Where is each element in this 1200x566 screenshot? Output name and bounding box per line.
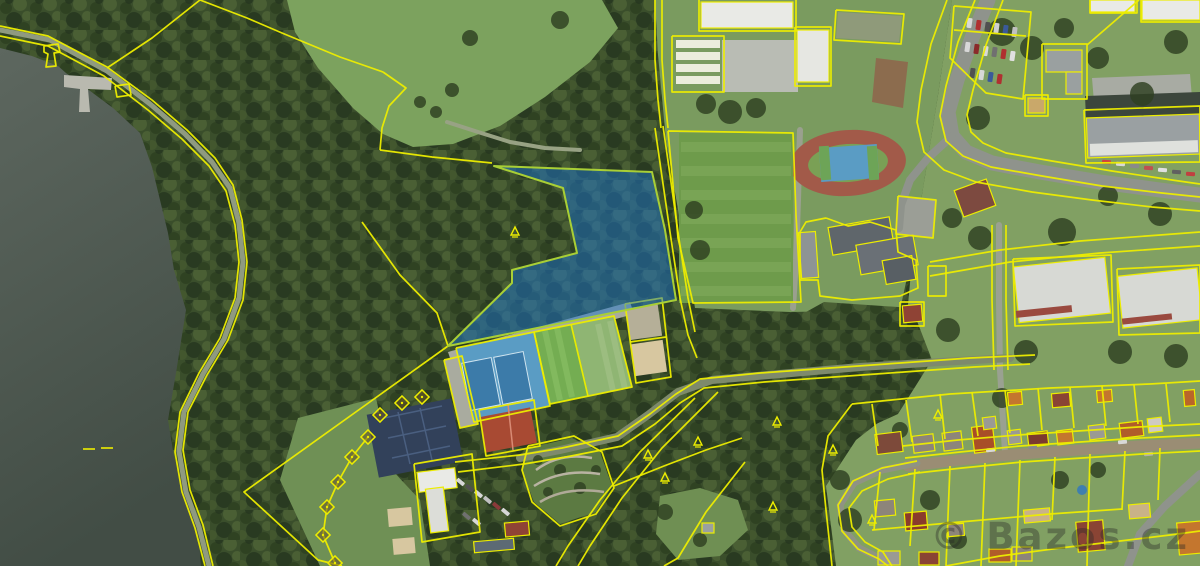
tree-canopy — [936, 318, 960, 342]
tree-canopy — [693, 533, 707, 547]
garden-pool — [1077, 485, 1087, 495]
building — [1046, 50, 1082, 72]
tree-canopy — [718, 100, 742, 124]
car — [1130, 164, 1139, 169]
region-plaza — [722, 40, 798, 92]
region-dirt-field — [872, 58, 908, 108]
car — [1186, 172, 1195, 177]
tree-canopy — [830, 470, 850, 490]
tree-canopy — [942, 208, 962, 228]
tree-canopy — [1014, 340, 1038, 364]
building — [797, 30, 829, 82]
diamond-dot — [322, 534, 324, 536]
tree-canopy — [574, 482, 586, 494]
tree-canopy — [1108, 340, 1132, 364]
tree-canopy — [1130, 82, 1154, 106]
tree-canopy — [1020, 36, 1044, 60]
building — [676, 64, 720, 72]
tree-canopy — [533, 455, 543, 465]
building — [1147, 417, 1163, 433]
building — [1066, 72, 1082, 94]
tree-canopy — [1054, 18, 1074, 38]
building — [919, 552, 939, 565]
diamond-dot — [337, 481, 339, 483]
tree-canopy — [1164, 344, 1188, 368]
aerial-cadastral-map[interactable] — [0, 0, 1200, 566]
building — [1076, 520, 1106, 552]
tree-canopy — [968, 226, 992, 250]
diamond-dot — [334, 562, 336, 564]
building — [676, 76, 720, 84]
court — [387, 507, 412, 527]
building — [676, 40, 720, 48]
building — [882, 256, 916, 285]
tree-canopy — [1087, 47, 1109, 69]
tree-canopy — [746, 98, 766, 118]
tree-canopy — [657, 504, 673, 520]
tree-canopy — [1090, 462, 1106, 478]
building — [1051, 392, 1070, 408]
diamond-dot — [351, 456, 353, 458]
building — [875, 431, 903, 454]
court — [631, 340, 667, 376]
tree-canopy — [462, 30, 478, 46]
building — [1142, 0, 1200, 20]
building — [1028, 98, 1045, 113]
region-allotments — [836, 12, 902, 42]
building — [902, 304, 922, 323]
diamond-dot — [401, 402, 403, 404]
tree-canopy — [920, 490, 940, 510]
map-viewport[interactable]: © Bazos.cz — [0, 0, 1200, 566]
building — [701, 2, 793, 28]
building — [1088, 424, 1106, 440]
tree-canopy — [690, 240, 710, 260]
building — [1119, 421, 1144, 439]
tree-canopy — [414, 96, 426, 108]
building — [1128, 503, 1150, 519]
diamond-dot — [367, 436, 369, 438]
building — [982, 416, 996, 429]
tree-canopy — [445, 83, 459, 97]
tree-canopy — [430, 106, 442, 118]
tree-canopy — [551, 11, 569, 29]
diamond-dot — [379, 414, 381, 416]
court — [392, 537, 415, 555]
tree-canopy — [1148, 202, 1172, 226]
tree-canopy — [1164, 30, 1188, 54]
building — [1097, 389, 1113, 402]
car — [1118, 440, 1127, 445]
tree-canopy — [685, 201, 703, 219]
building — [904, 511, 927, 531]
car — [1158, 168, 1167, 173]
tree-canopy — [696, 94, 716, 114]
diamond-dot — [421, 396, 423, 398]
car — [1172, 170, 1181, 175]
building — [676, 52, 720, 60]
tree-canopy — [988, 18, 1016, 46]
building — [948, 523, 965, 536]
building — [1007, 391, 1022, 405]
building — [798, 231, 818, 278]
diamond-dot — [326, 506, 328, 508]
building — [702, 523, 714, 533]
car — [1144, 166, 1153, 171]
building — [504, 521, 529, 537]
building — [1177, 521, 1200, 555]
building — [1183, 390, 1195, 407]
